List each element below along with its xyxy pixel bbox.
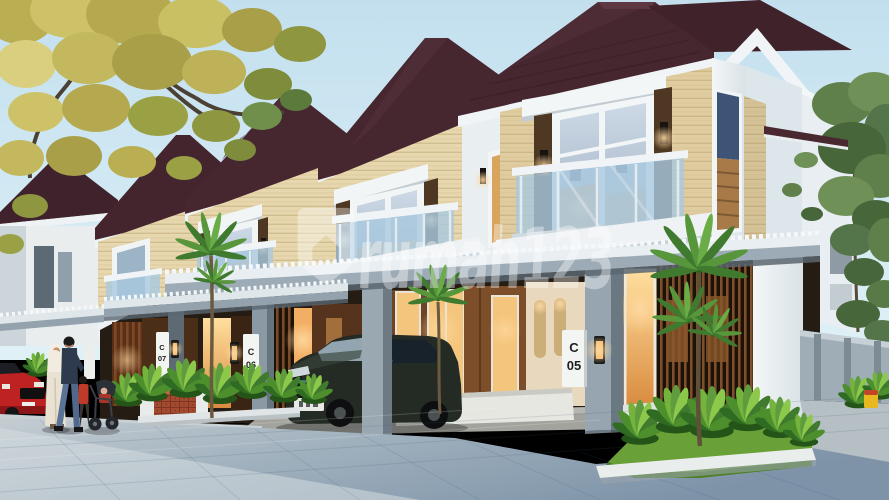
plaque-c05-number: 05 — [567, 358, 581, 373]
architectural-render: C 05 C 06 C 07 — [0, 0, 889, 500]
plaque-far — [84, 346, 95, 379]
watermark-text: rumah123 — [355, 212, 616, 309]
plaque-c05-letter: C — [569, 340, 579, 355]
plaque-c06-letter: C — [248, 347, 255, 357]
plaque-c07-number: 07 — [158, 354, 166, 363]
plaque-c07-letter: C — [159, 343, 165, 352]
